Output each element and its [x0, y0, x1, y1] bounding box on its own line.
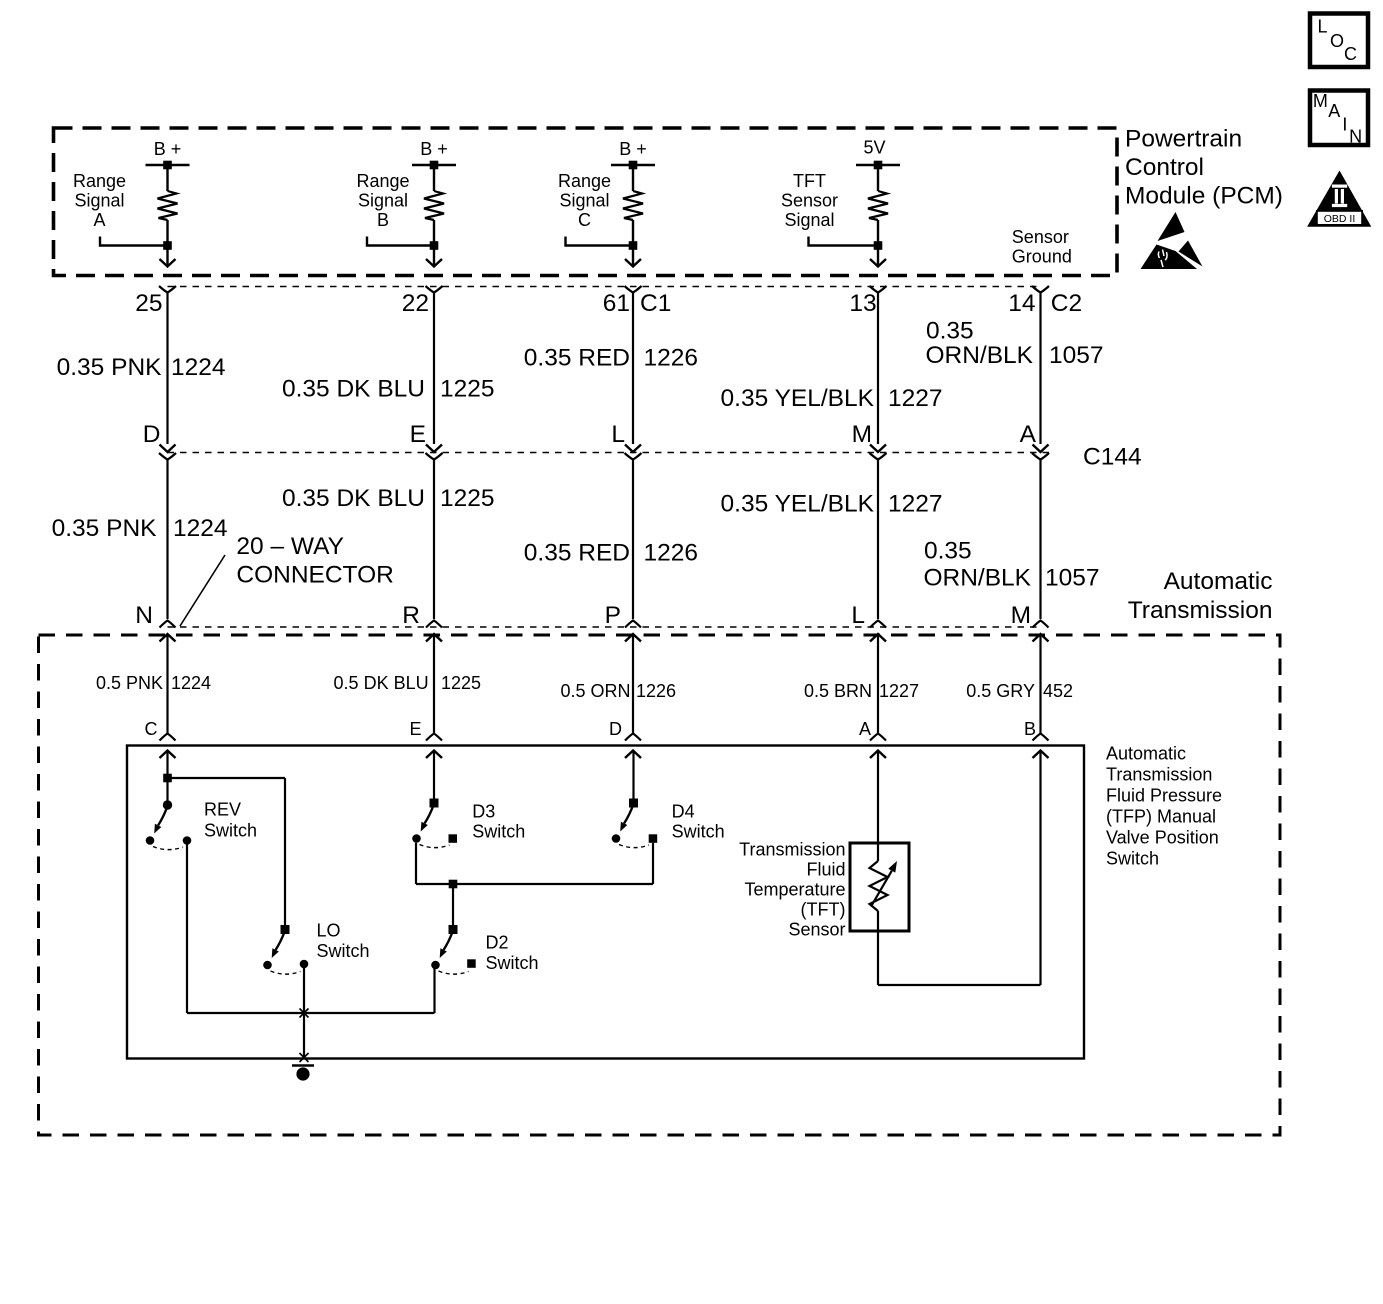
svg-text:0.5 GRY: 0.5 GRY [966, 681, 1035, 701]
svg-text:0.5 ORN: 0.5 ORN [560, 681, 630, 701]
svg-text:L: L [611, 421, 625, 448]
svg-text:(TFT): (TFT) [801, 900, 846, 920]
svg-text:Fluid Pressure: Fluid Pressure [1106, 786, 1222, 806]
svg-text:M: M [1313, 91, 1328, 111]
svg-text:C: C [578, 210, 591, 230]
svg-text:0.5 BRN: 0.5 BRN [804, 681, 872, 701]
svg-text:0.35 YEL/BLK: 0.35 YEL/BLK [721, 491, 875, 518]
svg-text:14: 14 [1008, 290, 1035, 317]
svg-text:0.35: 0.35 [924, 538, 972, 565]
svg-text:Range: Range [558, 171, 611, 191]
svg-text:1227: 1227 [888, 491, 943, 518]
svg-text:L: L [1318, 17, 1328, 37]
svg-text:Automatic: Automatic [1164, 568, 1273, 595]
svg-text:Sensor: Sensor [788, 920, 845, 940]
svg-text:1057: 1057 [1045, 565, 1100, 592]
svg-text:D: D [143, 421, 161, 448]
svg-text:L: L [851, 602, 865, 629]
svg-text:5V: 5V [863, 138, 885, 158]
svg-text:1224: 1224 [173, 515, 228, 542]
svg-text:22: 22 [402, 290, 429, 317]
svg-text:1225: 1225 [440, 485, 495, 512]
svg-text:1225: 1225 [441, 673, 481, 693]
svg-text:LO: LO [317, 921, 341, 941]
svg-text:B +: B + [154, 139, 182, 159]
svg-text:C144: C144 [1083, 444, 1142, 471]
svg-text:0.5 DK BLU: 0.5 DK BLU [334, 673, 429, 693]
svg-text:B: B [1024, 719, 1036, 739]
svg-text:E: E [410, 421, 426, 448]
svg-text:Signal: Signal [559, 191, 609, 211]
svg-text:0.35 DK BLU: 0.35 DK BLU [282, 485, 425, 512]
svg-text:A: A [859, 719, 871, 739]
svg-text:1226: 1226 [644, 345, 699, 372]
svg-text:C2: C2 [1051, 290, 1082, 317]
svg-text:61: 61 [603, 290, 630, 317]
svg-text:Sensor: Sensor [1012, 227, 1069, 247]
svg-text:0.35 PNK: 0.35 PNK [52, 515, 158, 542]
svg-text:P: P [605, 602, 621, 629]
svg-text:D4: D4 [672, 802, 695, 822]
svg-text:Module (PCM): Module (PCM) [1125, 183, 1283, 210]
svg-text:Switch: Switch [317, 941, 370, 961]
svg-text:Switch: Switch [486, 953, 539, 973]
svg-text:R: R [402, 602, 420, 629]
svg-text:20 – WAY: 20 – WAY [236, 533, 344, 560]
svg-text:B +: B + [619, 139, 647, 159]
svg-text:OBD II: OBD II [1324, 213, 1356, 225]
svg-text:O: O [1330, 31, 1344, 51]
svg-text:Switch: Switch [472, 822, 525, 842]
svg-text:C: C [1344, 44, 1357, 64]
svg-text:E: E [409, 719, 421, 739]
svg-text:1227: 1227 [888, 385, 943, 412]
svg-text:N: N [135, 602, 153, 629]
svg-text:C: C [145, 719, 158, 739]
svg-text:Switch: Switch [1106, 849, 1159, 869]
svg-text:ORN/BLK: ORN/BLK [925, 342, 1033, 369]
svg-text:I: I [1342, 115, 1347, 135]
svg-text:Valve Position: Valve Position [1106, 828, 1219, 848]
svg-text:Range: Range [73, 171, 126, 191]
svg-text:M: M [852, 421, 872, 448]
svg-text:Transmission: Transmission [739, 840, 845, 860]
svg-text:D2: D2 [486, 933, 509, 953]
svg-text:Signal: Signal [784, 210, 834, 230]
svg-text:A: A [1328, 101, 1340, 121]
svg-text:0.35 DK BLU: 0.35 DK BLU [282, 376, 425, 403]
svg-text:C1: C1 [640, 290, 671, 317]
svg-text:Sensor: Sensor [781, 191, 838, 211]
svg-text:M: M [1011, 602, 1031, 629]
svg-text:0.35: 0.35 [926, 318, 974, 345]
svg-text:1224: 1224 [171, 354, 226, 381]
svg-text:0.35 YEL/BLK: 0.35 YEL/BLK [721, 385, 875, 412]
svg-text:0.5 PNK: 0.5 PNK [96, 673, 163, 693]
svg-text:Signal: Signal [74, 191, 124, 211]
svg-text:Signal: Signal [358, 191, 408, 211]
svg-text:Control: Control [1125, 154, 1204, 181]
svg-text:Automatic: Automatic [1106, 744, 1186, 764]
svg-text:N: N [1349, 126, 1362, 146]
svg-text:B: B [377, 210, 389, 230]
svg-text:A: A [1020, 421, 1037, 448]
svg-text:1057: 1057 [1049, 342, 1104, 369]
svg-text:Fluid: Fluid [806, 860, 845, 880]
svg-text:REV: REV [204, 800, 241, 820]
svg-text:1226: 1226 [636, 681, 676, 701]
svg-text:1227: 1227 [879, 681, 919, 701]
svg-text:D3: D3 [472, 802, 495, 822]
svg-text:452: 452 [1043, 681, 1073, 701]
svg-text:1225: 1225 [440, 376, 495, 403]
svg-text:TFT: TFT [793, 171, 826, 191]
svg-text:B +: B + [420, 139, 448, 159]
svg-text:(TFP) Manual: (TFP) Manual [1106, 807, 1216, 827]
svg-text:13: 13 [849, 290, 876, 317]
svg-text:0.35 PNK: 0.35 PNK [57, 354, 163, 381]
svg-text:1224: 1224 [171, 673, 211, 693]
svg-text:0.35 RED: 0.35 RED [524, 540, 630, 567]
svg-text:A: A [93, 210, 105, 230]
svg-text:25: 25 [135, 290, 162, 317]
svg-text:ORN/BLK: ORN/BLK [923, 565, 1031, 592]
svg-text:Switch: Switch [672, 822, 725, 842]
svg-text:Transmission: Transmission [1106, 765, 1212, 785]
svg-text:0.35 RED: 0.35 RED [524, 345, 630, 372]
svg-text:1226: 1226 [644, 540, 699, 567]
svg-text:Switch: Switch [204, 821, 257, 841]
svg-text:Transmission: Transmission [1128, 597, 1273, 624]
svg-text:Temperature: Temperature [744, 880, 845, 900]
svg-text:Range: Range [356, 171, 409, 191]
svg-text:D: D [609, 719, 622, 739]
svg-text:Powertrain: Powertrain [1125, 126, 1242, 153]
svg-text:CONNECTOR: CONNECTOR [236, 562, 393, 589]
svg-text:Ground: Ground [1012, 247, 1072, 267]
